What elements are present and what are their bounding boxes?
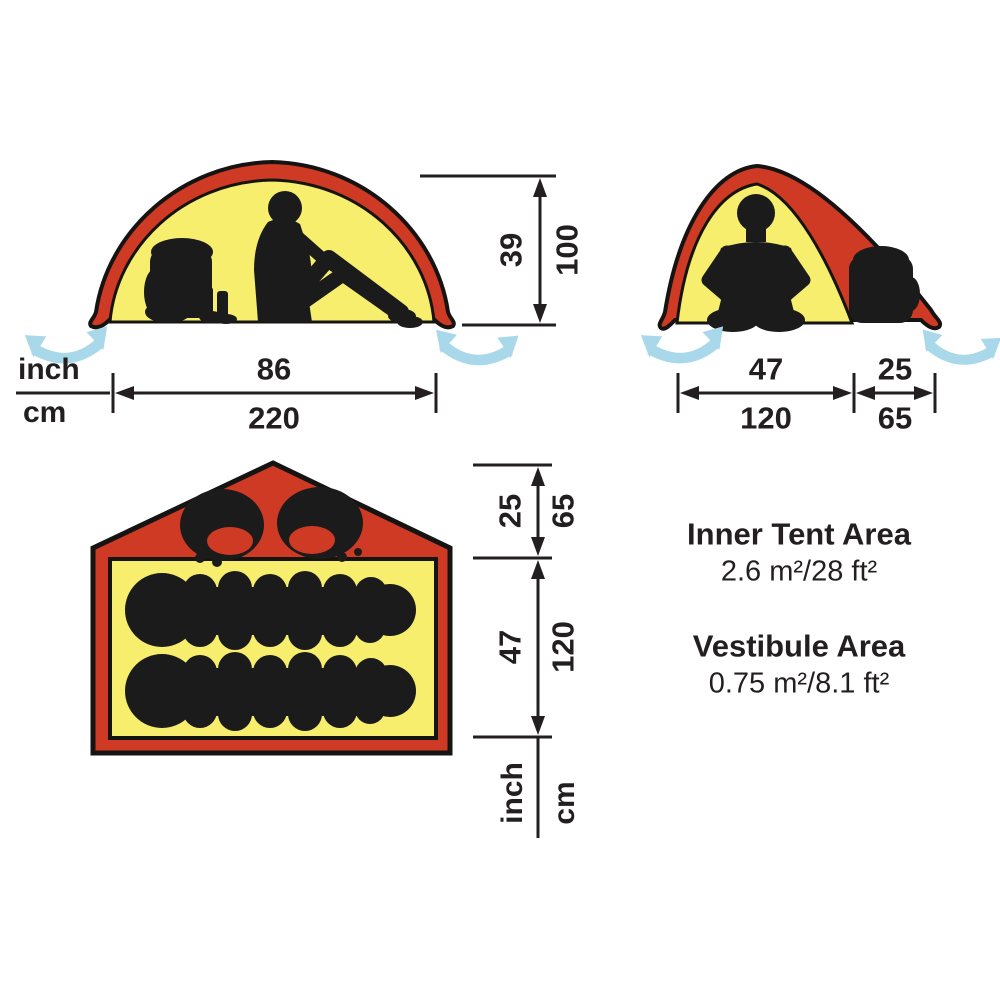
plan-unit-cm-label: cm	[550, 781, 580, 824]
side-unit-inch-label: inch	[18, 355, 80, 385]
side-width-inch-value: 86	[257, 354, 291, 385]
plan-inner-depth-inch-value: 47	[495, 630, 526, 664]
plan-vestibule-depth-cm-value: 65	[548, 494, 579, 528]
front-vestibule-width-cm-value: 65	[878, 403, 912, 434]
vestibule-area-value: 0.75 m²/8.1 ft²	[709, 670, 890, 699]
plan-unit-inch-label: inch	[498, 762, 528, 824]
plan-vestibule-depth-inch-value: 25	[495, 494, 526, 528]
plan-inner-depth-cm-value: 120	[548, 621, 579, 673]
tent-dimensions-diagram: inch cm 86 220 39 100 47 120 25 65 25 65…	[0, 0, 1000, 1000]
side-height-cm-value: 100	[552, 224, 583, 276]
front-inner-width-inch-value: 47	[749, 354, 783, 385]
side-width-cm-value: 220	[248, 403, 300, 434]
front-vestibule-width-inch-value: 25	[878, 354, 912, 385]
vestibule-area-title: Vestibule Area	[693, 631, 906, 662]
inner-tent-area-value: 2.6 m²/28 ft²	[721, 558, 877, 587]
inner-tent-area-title: Inner Tent Area	[687, 519, 911, 550]
front-inner-width-cm-value: 120	[740, 403, 792, 434]
side-unit-cm-label: cm	[23, 398, 66, 428]
side-height-inch-value: 39	[496, 233, 527, 267]
